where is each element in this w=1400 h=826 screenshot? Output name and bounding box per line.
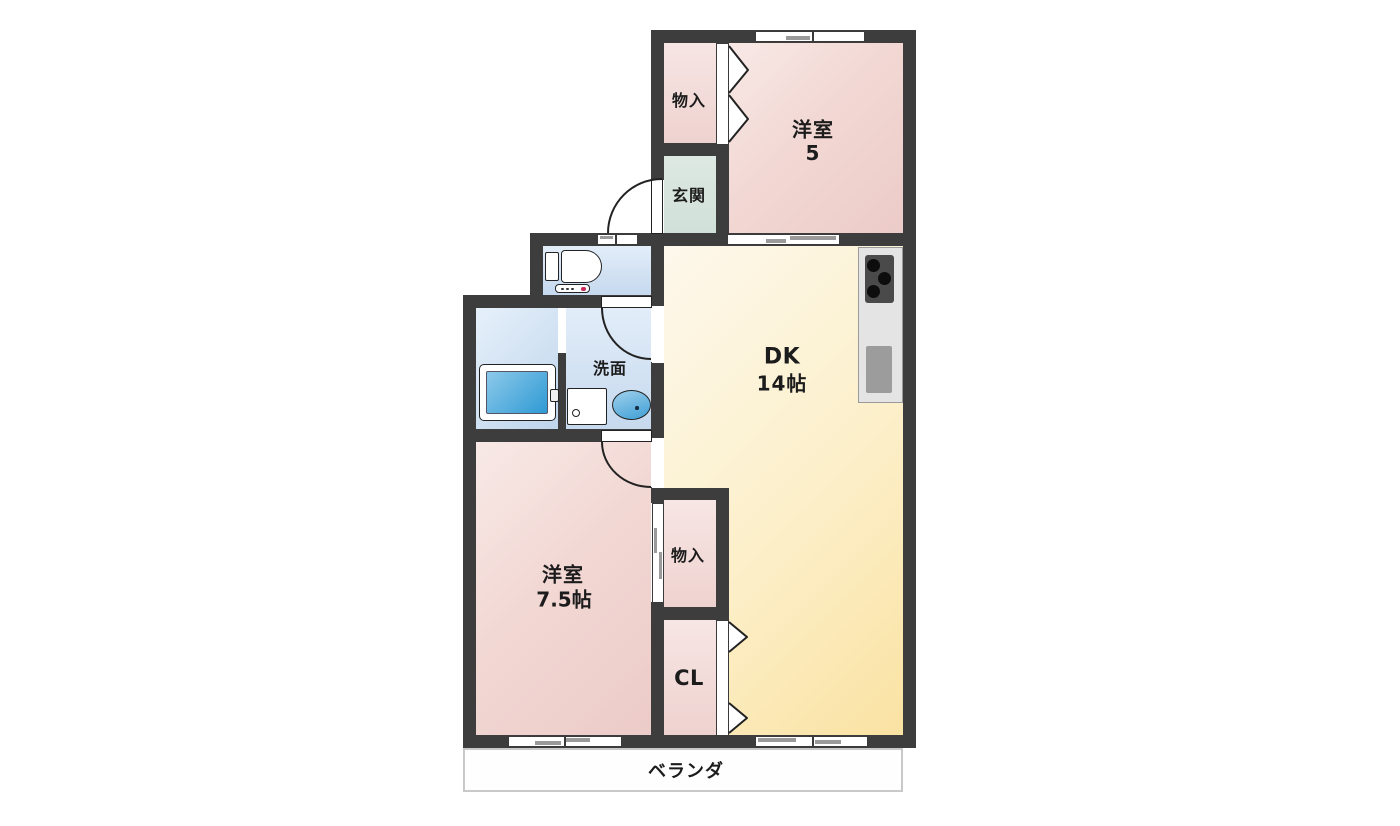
window-sash (566, 738, 590, 742)
western-7-5-size: 7.5帖 (536, 584, 591, 613)
sliding-door (652, 503, 664, 603)
wall (463, 295, 476, 748)
closet-label: CL (674, 666, 704, 690)
toilet-bowl-icon (561, 250, 602, 283)
wall (903, 30, 916, 748)
western-5-size: 5 (806, 141, 821, 165)
washing-machine-icon (567, 388, 607, 425)
window-sash (786, 36, 810, 40)
bedroom-door-leaf (601, 430, 652, 442)
folding-door-track (716, 43, 729, 145)
window-sash (815, 740, 841, 744)
sliding-door-sash (790, 236, 836, 240)
dk-label: DK (764, 345, 800, 370)
washroom-label: 洗面 (593, 355, 627, 379)
faucet-icon (550, 389, 559, 402)
window (755, 31, 865, 42)
sliding-door-sash (659, 552, 662, 579)
kitchen-sink-icon (866, 346, 892, 393)
dk-size: 14帖 (757, 368, 808, 397)
veranda-label: ベランダ (648, 757, 724, 783)
storage-bottom-label: 物入 (671, 542, 705, 566)
western-5-label: 洋室 (792, 114, 834, 143)
folding-door-track (716, 620, 729, 736)
wall (716, 145, 729, 246)
toilet-control-panel-icon (555, 284, 590, 293)
bathtub-water (486, 371, 548, 414)
window-sash (758, 738, 796, 742)
sink-icon (612, 390, 651, 420)
window-divider (615, 234, 617, 245)
toilet-tank-icon (545, 252, 559, 281)
floor-plan: 物入 玄関 洋室 5 DK 14帖 洗面 洋室 7.5帖 物入 CL ベランダ (0, 0, 1400, 826)
window-sash (535, 741, 561, 745)
bath-door-opening (558, 308, 566, 353)
wall (651, 607, 729, 620)
wall (651, 362, 664, 438)
window-divider (812, 31, 814, 42)
stove-icon (865, 255, 894, 303)
bedroom-door-opening (652, 438, 664, 488)
washroom-door-leaf (601, 296, 652, 308)
wall (716, 488, 729, 620)
entrance-label: 玄関 (672, 182, 706, 206)
wall (651, 602, 664, 735)
entrance-door-arc (607, 178, 662, 233)
wall (651, 43, 664, 180)
wall (558, 352, 566, 429)
sliding-door-sash (654, 528, 657, 553)
washroom-door-opening (652, 306, 664, 363)
storage-top-label: 物入 (672, 87, 706, 111)
sliding-door-sash (766, 239, 786, 243)
window-sash (600, 236, 613, 239)
window-divider (812, 736, 814, 747)
